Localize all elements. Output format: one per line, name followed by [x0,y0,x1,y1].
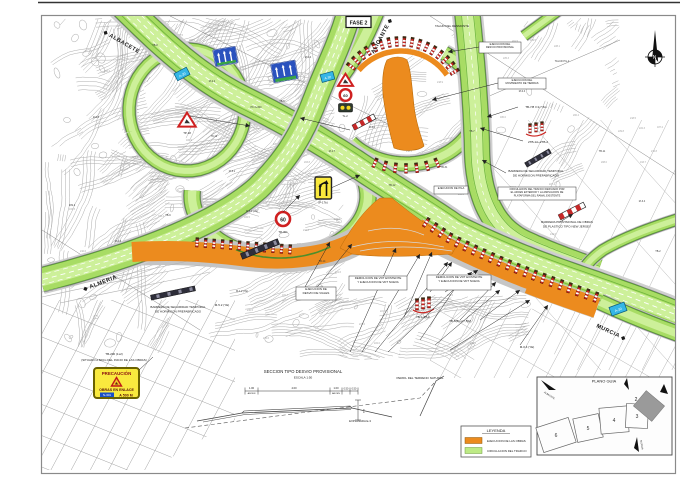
svg-text:6: 6 [555,433,558,439]
svg-text:TB-14: TB-14 [319,260,326,263]
svg-text:M-5.1: M-5.1 [229,170,236,173]
svg-text:218.9: 218.9 [437,81,444,84]
svg-text:183.4: 183.4 [158,215,165,218]
svg-text:TB-31: TB-31 [441,166,448,169]
svg-text:TB-7: TB-7 [469,130,475,133]
svg-text:182.4: 182.4 [186,139,193,142]
svg-text:195.2: 195.2 [470,342,477,345]
svg-text:TB-9: TB-9 [165,214,171,217]
svg-text:M-1.2 (YE): M-1.2 (YE) [236,290,248,293]
svg-text:BARRERA PROVISIONAL DE OBRAS: BARRERA PROVISIONAL DE OBRAS [541,220,593,224]
svg-text:EJECUCION DE LAS OBRAS: EJECUCION DE LAS OBRAS [487,439,526,443]
svg-text:3: 3 [636,414,639,420]
svg-text:TL-2: TL-2 [342,114,348,118]
svg-text:M-4.1: M-4.1 [369,126,376,129]
svg-text:227.4: 227.4 [549,183,556,186]
svg-text:CIRCULACION DEL TRAFICO: CIRCULACION DEL TRAFICO [487,449,527,453]
svg-text:EXPLANADA E-3: EXPLANADA E-3 [349,419,371,423]
svg-text:OBRAS EN ENLACE: OBRAS EN ENLACE [99,388,134,392]
svg-text:Y EJECUCION DE VDT NUEVA: Y EJECUCION DE VDT NUEVA [357,280,398,284]
svg-text:180.0: 180.0 [500,116,507,119]
svg-text:M-5.1 (YE): M-5.1 (YE) [246,210,258,213]
svg-text:TP-18: TP-18 [183,131,191,135]
svg-text:225.3: 225.3 [503,57,510,60]
svg-text:205.4: 205.4 [334,218,341,221]
svg-text:2: 2 [635,397,638,403]
svg-text:N-301: N-301 [103,393,112,397]
svg-text:M-5.2 (YE): M-5.2 (YE) [215,303,230,307]
svg-text:PK 2+300: PK 2+300 [250,106,262,109]
svg-text:LEYENDA: LEYENDA [487,428,506,433]
svg-text:M-1.7: M-1.7 [329,150,336,153]
svg-text:BARRERA DE SEGURIDAD TEMPORAL: BARRERA DE SEGURIDAD TEMPORAL [508,169,564,173]
svg-text:212.6: 212.6 [93,116,100,119]
svg-text:216.6: 216.6 [550,233,557,236]
svg-text:206.2: 206.2 [104,70,111,73]
svg-text:221.7: 221.7 [380,310,387,313]
svg-text:M-2.6: M-2.6 [115,240,122,243]
svg-text:FASE 2: FASE 2 [350,21,368,27]
svg-text:EJECUCION DEL: EJECUCION DEL [512,78,533,82]
svg-text:0.50: 0.50 [344,388,349,391]
svg-text:DE HORMIGON PREFABRICADO: DE HORMIGON PREFABRICADO [513,174,560,178]
svg-text:(SITUADO A 500m DEL INICIO DE: (SITUADO A 500m DEL INICIO DE LAS OBRAS) [81,358,147,362]
svg-text:0.50: 0.50 [352,388,357,391]
svg-text:TALUD PG-2: TALUD PG-2 [555,60,570,63]
svg-text:5: 5 [587,426,590,432]
svg-text:181.7: 181.7 [282,294,289,297]
svg-text:200.4: 200.4 [573,114,580,117]
svg-text:SECCION TIPO DESVIO PROVISI: SECCION TIPO DESVIO PROVISIONAL [264,369,343,374]
svg-text:212.6: 212.6 [303,229,310,232]
svg-text:DESVIO PROVISIONAL: DESVIO PROVISIONAL [486,45,515,49]
svg-text:TB-7/8 I=1,7,5m: TB-7/8 I=1,7,5m [525,105,547,109]
svg-text:213.8: 213.8 [651,150,658,153]
svg-text:DE HORMIGON PREFABRICADO: DE HORMIGON PREFABRICADO [155,310,202,314]
svg-text:MOVIMIENTO DE TIERRAS: MOVIMIENTO DE TIERRAS [506,81,539,85]
svg-text:208.0: 208.0 [601,161,608,164]
svg-text:TB-5: TB-5 [279,100,285,103]
svg-text:TB-8: TB-8 [152,44,158,47]
svg-text:229.7: 229.7 [132,156,139,159]
svg-text:M-3.4: M-3.4 [639,200,646,203]
svg-text:78-12: 78-12 [211,135,218,138]
svg-text:60: 60 [343,93,348,98]
svg-text:4: 4 [613,418,616,424]
svg-text:229.8: 229.8 [618,130,625,133]
svg-text:ARCEN: ARCEN [248,392,256,395]
svg-text:Y EJECUCION DE VDT NUEVA: Y EJECUCION DE VDT NUEVA [438,279,479,283]
svg-text:193.7: 193.7 [640,161,647,164]
svg-text:230.5: 230.5 [247,309,254,312]
svg-text:60: 60 [280,218,286,224]
svg-text:EJECUCION DE PILA: EJECUCION DE PILA [438,186,465,190]
svg-text:BARRERA DE SEGURIDAD TEMPORAL: BARRERA DE SEGURIDAD TEMPORAL [150,305,206,309]
svg-text:187.2: 187.2 [657,126,664,129]
svg-text:N: N [653,55,657,61]
svg-text:(P-17b): (P-17b) [318,201,327,205]
svg-text:1.00: 1.00 [333,386,339,390]
svg-text:228.1: 228.1 [554,45,561,48]
svg-text:189.5: 189.5 [530,39,537,42]
svg-text:M-0.4: M-0.4 [519,90,526,93]
svg-text:EJECUCION DEL: EJECUCION DEL [490,42,511,46]
svg-text:PLANO GUIA: PLANO GUIA [592,379,617,384]
svg-text:TB-5(B)-L(7,5)M: TB-5(B)-L(7,5)M [449,319,471,323]
svg-text:TB-12: TB-12 [389,184,396,187]
svg-text:TB-200 (1x2): TB-200 (1x2) [105,352,123,356]
svg-text:A 500 M: A 500 M [119,393,132,397]
svg-text:DESVIO DE VIALES: DESVIO DE VIALES [303,291,330,295]
svg-text:PLATAFORMA DEL RAMAL EXISTENTE: PLATAFORMA DEL RAMAL EXISTENTE [514,193,561,197]
svg-text:PERFIL DEL TERRENO NATURAL: PERFIL DEL TERRENO NATURAL [396,376,443,380]
svg-text:PRECAUCIÓN: PRECAUCIÓN [102,371,132,376]
svg-text:M-2.2: M-2.2 [209,80,216,83]
svg-text:221.6: 221.6 [335,271,342,274]
svg-text:222.0: 222.0 [374,342,381,345]
svg-text:203.8: 203.8 [304,161,311,164]
svg-text:222.3: 222.3 [639,127,646,130]
svg-text:2TB-1A+2TB-2: 2TB-1A+2TB-2 [528,140,548,144]
svg-text:182.5: 182.5 [244,216,251,219]
svg-text:TALUD DEL DESMONTE: TALUD DEL DESMONTE [435,24,469,28]
svg-text:DE PLASTICO TIPO NEW JERSEY: DE PLASTICO TIPO NEW JERSEY [543,225,591,229]
svg-text:225.6: 225.6 [263,337,270,340]
svg-text:197.3: 197.3 [69,208,76,211]
svg-text:218.5: 218.5 [630,117,637,120]
svg-text:M-0.4: M-0.4 [305,56,312,59]
svg-text:TB-11: TB-11 [599,150,606,153]
svg-text:4.00: 4.00 [291,386,297,390]
svg-text:ARCEN: ARCEN [332,392,340,395]
svg-text:TB-2: TB-2 [655,250,661,253]
svg-text:210.6: 210.6 [80,250,87,253]
svg-text:TR-301: TR-301 [278,230,288,234]
svg-text:ESCALA 1:50: ESCALA 1:50 [294,376,313,380]
svg-text:M-0.4 (YE): M-0.4 (YE) [520,345,535,349]
svg-text:1.00: 1.00 [249,386,255,390]
svg-text:209.4: 209.4 [69,204,76,207]
